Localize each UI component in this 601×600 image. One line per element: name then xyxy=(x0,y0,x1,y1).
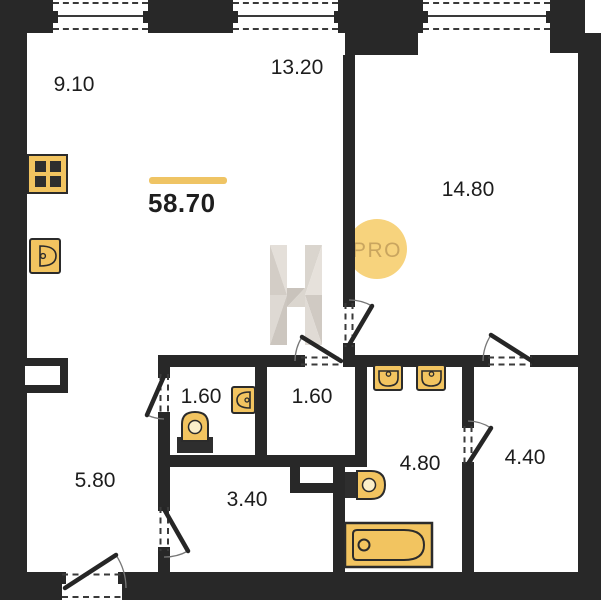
ventilation-shaft xyxy=(25,358,68,393)
wall-corridor-a xyxy=(158,355,295,367)
wall-wc-divider xyxy=(255,355,267,467)
wall-cap xyxy=(343,295,355,307)
wall-junction xyxy=(343,355,355,367)
window-1-cap-left xyxy=(49,11,58,23)
wall-wc-bottom xyxy=(158,455,367,467)
room-label-kitchen: 9.10 xyxy=(54,73,95,97)
room-label-storage: 1.60 xyxy=(292,385,333,409)
wall-outer-bottom-right xyxy=(122,572,601,600)
room-label-wc: 1.60 xyxy=(181,385,222,409)
wall-top-pillar-1 xyxy=(148,0,233,33)
wall-cap xyxy=(158,370,170,378)
pro-badge: PRO xyxy=(347,219,407,279)
bathtub-icon xyxy=(345,523,432,567)
wall-wc-left-c xyxy=(158,555,170,572)
wall-cap xyxy=(478,355,490,367)
wall-top-pillar-2 xyxy=(338,0,423,33)
room-label-living: 13.20 xyxy=(271,56,324,80)
room-label-corridor: 3.40 xyxy=(227,488,268,512)
wc-sink-icon xyxy=(232,387,255,413)
wall-corner-top-right xyxy=(550,0,585,53)
room-label-hallway: 5.80 xyxy=(75,469,116,493)
room-label-bathroom: 4.80 xyxy=(400,452,441,476)
wall-outer-right xyxy=(578,33,601,572)
wall-bedroom-divider xyxy=(343,55,355,295)
window-1 xyxy=(53,2,148,30)
entrance-jamb-left xyxy=(56,572,66,584)
wall-wc-left-a xyxy=(158,355,170,370)
pro-badge-text: PRO xyxy=(352,239,402,262)
bedroom-door-leaf xyxy=(349,306,372,345)
window-3-cap-left xyxy=(419,11,428,23)
bedroom-door2-leaf xyxy=(491,335,532,361)
wall-corner-top-left xyxy=(0,0,53,33)
window-1-cap-right xyxy=(143,11,152,23)
kitchen-sink-icon xyxy=(30,239,60,273)
wall-cap xyxy=(158,412,170,420)
corridor-door-leaf xyxy=(164,509,188,551)
room-label-wardrobe: 4.40 xyxy=(505,446,546,470)
wall-outer-left xyxy=(0,0,27,600)
wall-cap xyxy=(295,355,305,367)
watermark-h-logo xyxy=(270,245,322,345)
total-area-label: 58.70 xyxy=(148,188,216,219)
bathroom-sink-1-icon xyxy=(374,365,402,390)
wc-toilet-icon xyxy=(177,412,213,453)
floor-plan: PRO xyxy=(0,0,601,600)
wall-cap xyxy=(462,420,474,428)
wall-cap xyxy=(158,503,170,511)
room-label-bedroom: 14.80 xyxy=(442,178,495,202)
window-3-cap-right xyxy=(546,11,555,23)
wc-door-leaf xyxy=(147,376,164,415)
window-2 xyxy=(233,2,338,30)
wall-corridor-c xyxy=(542,355,578,367)
wall-corridor-bathroom-divider xyxy=(333,467,345,572)
bathroom-sink-2-icon xyxy=(417,365,445,390)
window-2-cap-right xyxy=(334,11,343,23)
wall-cap xyxy=(462,462,474,470)
entrance-jamb-right xyxy=(118,572,128,584)
bathroom-toilet-icon xyxy=(345,471,385,499)
stove-icon xyxy=(28,155,67,193)
bathroom-door-leaf xyxy=(468,428,491,464)
door-swing-arcs xyxy=(116,300,491,588)
pro-badge-circle xyxy=(347,219,407,279)
wall-cap xyxy=(158,547,170,555)
wall-wardrobe-divider-b xyxy=(462,470,474,572)
wall-outer-bottom-left xyxy=(0,572,62,600)
wall-storage-right xyxy=(355,355,367,467)
wall-cap xyxy=(343,343,355,355)
wall-top-pillar-2-foot xyxy=(345,33,418,55)
window-2-cap-left xyxy=(229,11,238,23)
total-area-underline xyxy=(149,177,227,184)
living-door-leaf xyxy=(302,337,341,361)
wall-wardrobe-divider-a xyxy=(462,367,474,420)
wall-cap xyxy=(530,355,542,367)
wall-corridor-b xyxy=(355,355,478,367)
entrance-door-leaf xyxy=(65,555,116,588)
window-3 xyxy=(423,2,550,30)
